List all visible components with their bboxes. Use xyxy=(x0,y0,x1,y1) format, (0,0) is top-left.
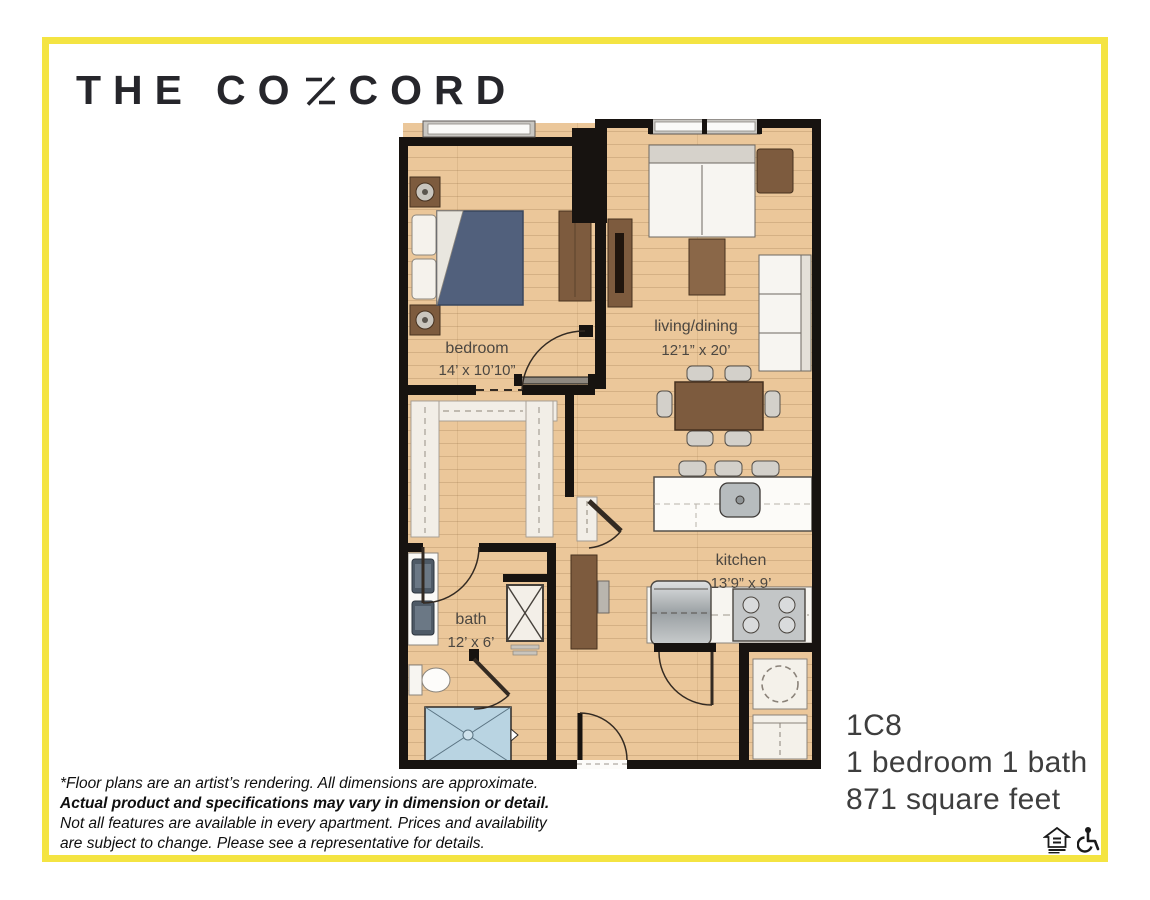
dryer xyxy=(753,715,807,759)
media-unit xyxy=(608,219,632,307)
bedroom-window xyxy=(423,121,535,137)
logo-word-co: CO xyxy=(216,70,302,111)
living-dining-dims: 12’1” x 20’ xyxy=(661,342,730,359)
toilet xyxy=(409,665,450,695)
living-dining-label: living/dining xyxy=(654,318,738,335)
disclaimer-line-1: *Floor plans are an artist’s rendering. … xyxy=(60,774,549,794)
bath-label: bath xyxy=(455,611,486,628)
nightstand-upper xyxy=(410,177,440,207)
equal-housing-icon xyxy=(1043,826,1071,854)
disclaimer-line-2: Actual product and specifications may va… xyxy=(60,794,549,814)
living-window xyxy=(648,119,762,134)
wheelchair-accessibility-icon xyxy=(1077,826,1101,854)
bar-stools xyxy=(679,461,779,476)
stylized-n-icon xyxy=(304,74,337,108)
bedroom-label: bedroom xyxy=(445,340,508,357)
floor-plan-drawing: bedroom 14’ x 10’10” living/dining 12’1”… xyxy=(399,119,829,771)
sectional-sofa xyxy=(759,255,811,371)
unit-code: 1C8 xyxy=(846,707,1088,744)
dresser xyxy=(559,211,591,301)
floor-plan-sheet: THE CO CORD xyxy=(0,0,1150,900)
compliance-badges xyxy=(1043,826,1101,854)
shower xyxy=(425,707,518,763)
unit-info: 1C8 1 bedroom 1 bath 871 square feet xyxy=(846,707,1088,818)
coffee-table xyxy=(689,239,725,295)
sofa-top xyxy=(649,145,755,237)
kitchen-island xyxy=(654,477,812,531)
nightstand-lower xyxy=(410,305,440,335)
logo-word-cord: CORD xyxy=(349,70,518,111)
logo-word-the: THE xyxy=(76,70,194,111)
unit-area: 871 square feet xyxy=(846,781,1088,818)
bedroom-dims: 14’ x 10’10” xyxy=(439,362,516,379)
kitchen-dims: 13’9” x 9’ xyxy=(711,575,772,592)
unit-layout: 1 bedroom 1 bath xyxy=(846,744,1088,781)
range-stove xyxy=(733,589,805,641)
washer xyxy=(753,659,807,709)
disclaimer: *Floor plans are an artist’s rendering. … xyxy=(60,774,549,854)
bath-dims: 12’ x 6’ xyxy=(448,634,495,651)
refrigerator xyxy=(651,581,711,645)
disclaimer-line-3: Not all features are available in every … xyxy=(60,814,549,834)
kitchen-label: kitchen xyxy=(716,552,767,569)
armchair xyxy=(757,149,793,193)
disclaimer-line-4: are subject to change. Please see a repr… xyxy=(60,834,549,854)
brand-logo: THE CO CORD xyxy=(76,70,517,111)
